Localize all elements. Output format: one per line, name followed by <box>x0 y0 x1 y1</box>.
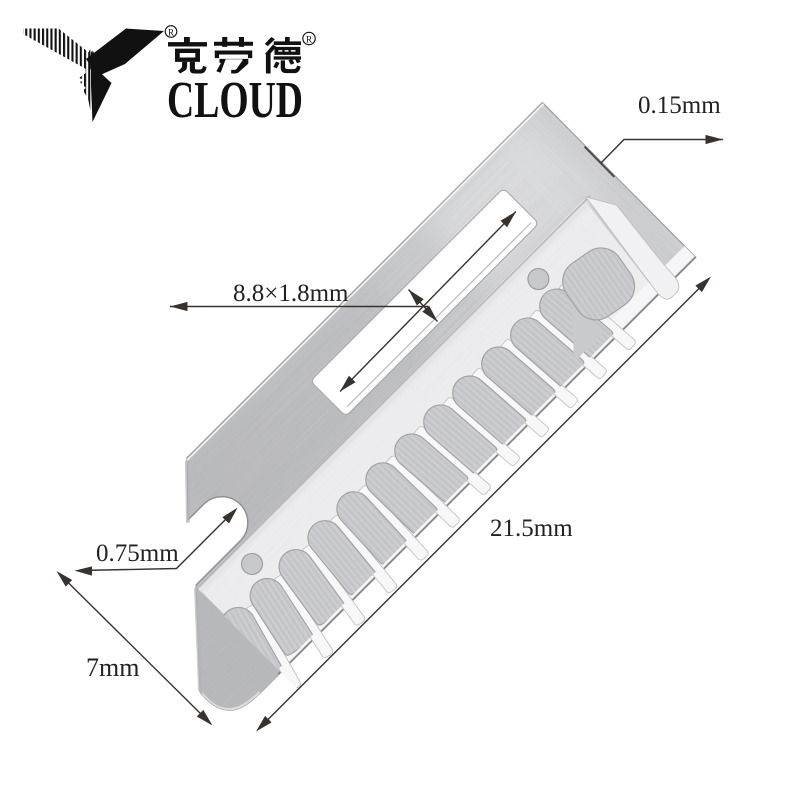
svg-text:0.15mm: 0.15mm <box>638 92 721 119</box>
svg-text:7mm: 7mm <box>86 653 139 682</box>
svg-text:CLOUD: CLOUD <box>167 72 303 129</box>
svg-text:0.75mm: 0.75mm <box>96 540 179 567</box>
svg-text:21.5mm: 21.5mm <box>490 515 573 542</box>
svg-text:R: R <box>306 36 313 46</box>
svg-text:8.8×1.8mm: 8.8×1.8mm <box>233 280 349 307</box>
svg-text:R: R <box>168 28 174 38</box>
